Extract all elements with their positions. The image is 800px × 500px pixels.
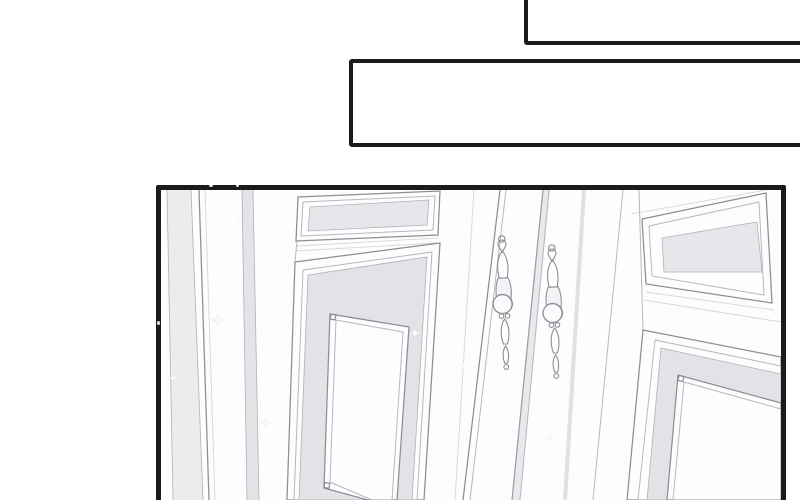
left-door-main-panel bbox=[287, 243, 440, 500]
ink-speck bbox=[209, 184, 213, 187]
caption-box-top-text bbox=[528, 0, 800, 41]
caption-box-top bbox=[524, 0, 800, 45]
right-door-main-panel bbox=[627, 330, 781, 500]
manga-page bbox=[0, 0, 800, 500]
left-door-top-panel bbox=[296, 191, 440, 241]
door-illustration bbox=[161, 190, 781, 500]
ink-speck bbox=[157, 321, 160, 325]
caption-box-middle bbox=[349, 59, 800, 147]
comic-panel bbox=[156, 185, 786, 500]
caption-box-middle-text bbox=[353, 63, 800, 143]
ink-speck bbox=[236, 184, 239, 187]
